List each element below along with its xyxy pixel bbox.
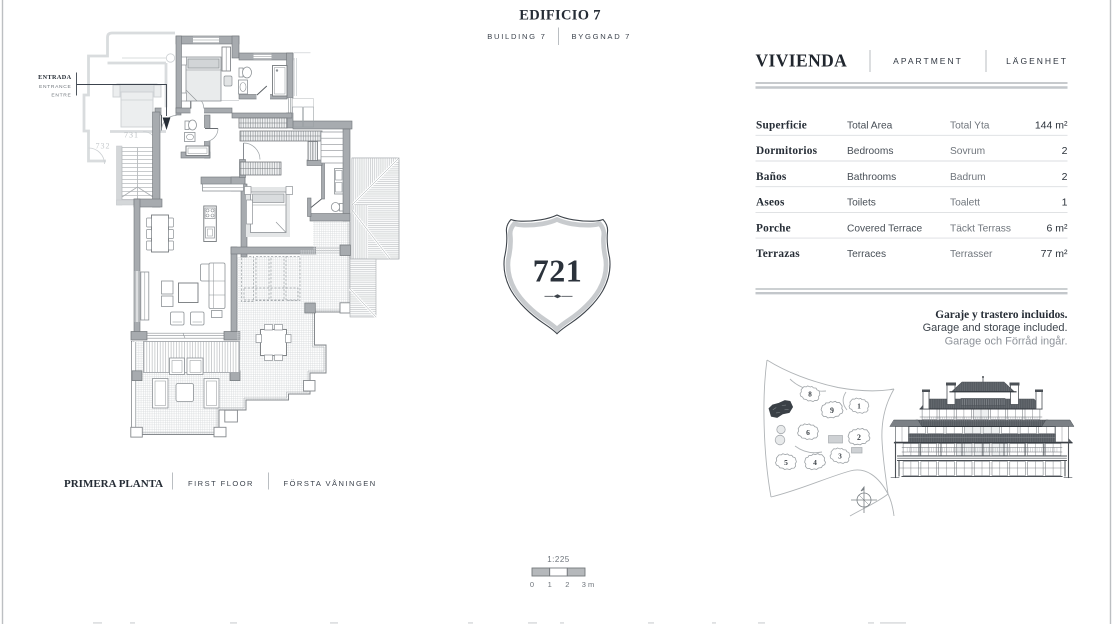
svg-text:Terraces: Terraces (847, 249, 886, 260)
svg-text:9: 9 (830, 406, 834, 415)
svg-text:8: 8 (808, 391, 812, 399)
svg-text:Garage och Förråd ingår.: Garage och Förråd ingår. (945, 336, 1068, 348)
svg-text:ENTRANCE: ENTRANCE (39, 84, 72, 90)
svg-text:LÄGENHET: LÄGENHET (1006, 56, 1068, 66)
svg-text:732: 732 (96, 142, 111, 151)
svg-text:Badrum: Badrum (950, 172, 986, 183)
svg-text:1: 1 (548, 580, 552, 589)
svg-text:77 m²: 77 m² (1041, 248, 1068, 260)
svg-text:1: 1 (1062, 197, 1068, 209)
svg-text:Terrazas: Terrazas (756, 248, 800, 260)
svg-text:731: 731 (124, 131, 139, 140)
svg-text:3 m: 3 m (582, 580, 595, 589)
svg-text:Aseos: Aseos (756, 197, 785, 209)
svg-text:Total Area: Total Area (847, 121, 893, 132)
svg-text:BUILDING 7: BUILDING 7 (487, 32, 546, 41)
svg-text:3: 3 (838, 453, 842, 461)
svg-text:Dormitorios: Dormitorios (756, 145, 818, 157)
svg-text:5: 5 (784, 458, 788, 467)
svg-text:2: 2 (1062, 171, 1068, 183)
svg-text:721: 721 (533, 253, 583, 289)
svg-text:Baños: Baños (756, 171, 787, 183)
svg-text:Täckt Terrass: Täckt Terrass (950, 223, 1011, 234)
svg-text:FÖRSTA VÅNINGEN: FÖRSTA VÅNINGEN (284, 479, 377, 488)
svg-text:1: 1 (857, 403, 861, 411)
svg-text:0: 0 (530, 580, 534, 589)
svg-text:Porche: Porche (756, 222, 791, 234)
svg-text:4: 4 (813, 458, 817, 467)
svg-text:Covered Terrace: Covered Terrace (847, 223, 922, 234)
svg-text:ENTRADA: ENTRADA (38, 74, 72, 81)
svg-text:Bathrooms: Bathrooms (847, 172, 896, 183)
svg-text:2: 2 (1062, 145, 1068, 157)
svg-text:FIRST FLOOR: FIRST FLOOR (188, 479, 254, 488)
svg-text:APARTMENT: APARTMENT (893, 56, 963, 66)
svg-text:144 m²: 144 m² (1035, 120, 1068, 132)
svg-text:BYGGNAD 7: BYGGNAD 7 (572, 32, 632, 41)
svg-text:ENTRE: ENTRE (51, 93, 71, 99)
svg-text:Bedrooms: Bedrooms (847, 146, 893, 157)
svg-text:1:225: 1:225 (547, 555, 570, 564)
svg-text:Terrasser: Terrasser (950, 249, 993, 260)
svg-text:Toalett: Toalett (950, 198, 980, 209)
svg-text:Sovrum: Sovrum (950, 146, 985, 157)
svg-text:6: 6 (806, 428, 810, 437)
svg-text:PRIMERA PLANTA: PRIMERA PLANTA (64, 478, 163, 490)
svg-text:6 m²: 6 m² (1047, 222, 1069, 234)
svg-text:VIVIENDA: VIVIENDA (756, 51, 848, 71)
svg-text:2: 2 (857, 433, 861, 442)
svg-text:Total Yta: Total Yta (950, 121, 990, 132)
svg-text:Garage and storage included.: Garage and storage included. (923, 322, 1068, 334)
svg-text:Garaje y trastero incluidos.: Garaje y trastero incluidos. (935, 309, 1067, 321)
svg-text:EDIFICIO 7: EDIFICIO 7 (519, 8, 601, 24)
svg-text:2: 2 (565, 580, 569, 589)
svg-text:Superficie: Superficie (756, 120, 807, 132)
svg-text:Toilets: Toilets (847, 198, 876, 209)
